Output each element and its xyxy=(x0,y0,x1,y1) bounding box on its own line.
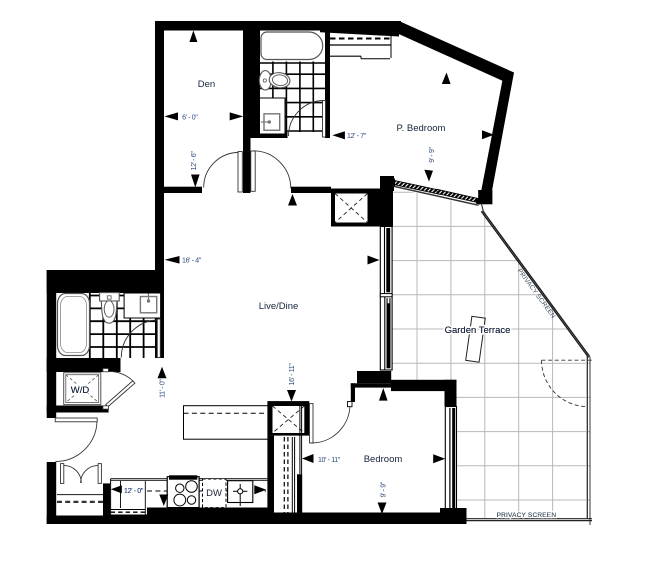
svg-text:16' - 4": 16' - 4" xyxy=(182,257,202,264)
svg-text:PRIVACY SCREEN: PRIVACY SCREEN xyxy=(497,512,557,519)
svg-text:DW: DW xyxy=(206,488,222,499)
svg-text:Garden Terrace: Garden Terrace xyxy=(445,325,511,336)
svg-text:Den: Den xyxy=(198,79,215,90)
svg-text:12' - 6": 12' - 6" xyxy=(191,151,198,171)
svg-text:9' - 9": 9' - 9" xyxy=(381,481,388,497)
svg-text:12' - 0": 12' - 0" xyxy=(124,488,144,495)
svg-text:W/D: W/D xyxy=(71,385,90,396)
svg-text:Live/Dine: Live/Dine xyxy=(259,301,299,312)
svg-text:Bedroom: Bedroom xyxy=(364,454,403,465)
svg-text:9' - 9": 9' - 9" xyxy=(429,146,436,162)
svg-text:PRIVACY SCREEN: PRIVACY SCREEN xyxy=(516,268,557,320)
svg-text:16' - 11": 16' - 11" xyxy=(289,363,296,386)
svg-text:6' - 0": 6' - 0" xyxy=(182,114,198,121)
svg-text:P. Bedroom: P. Bedroom xyxy=(397,123,446,134)
svg-text:12' - 7": 12' - 7" xyxy=(347,133,367,140)
svg-text:10' - 11": 10' - 11" xyxy=(318,457,341,464)
svg-text:11' - 0": 11' - 0" xyxy=(160,379,167,398)
